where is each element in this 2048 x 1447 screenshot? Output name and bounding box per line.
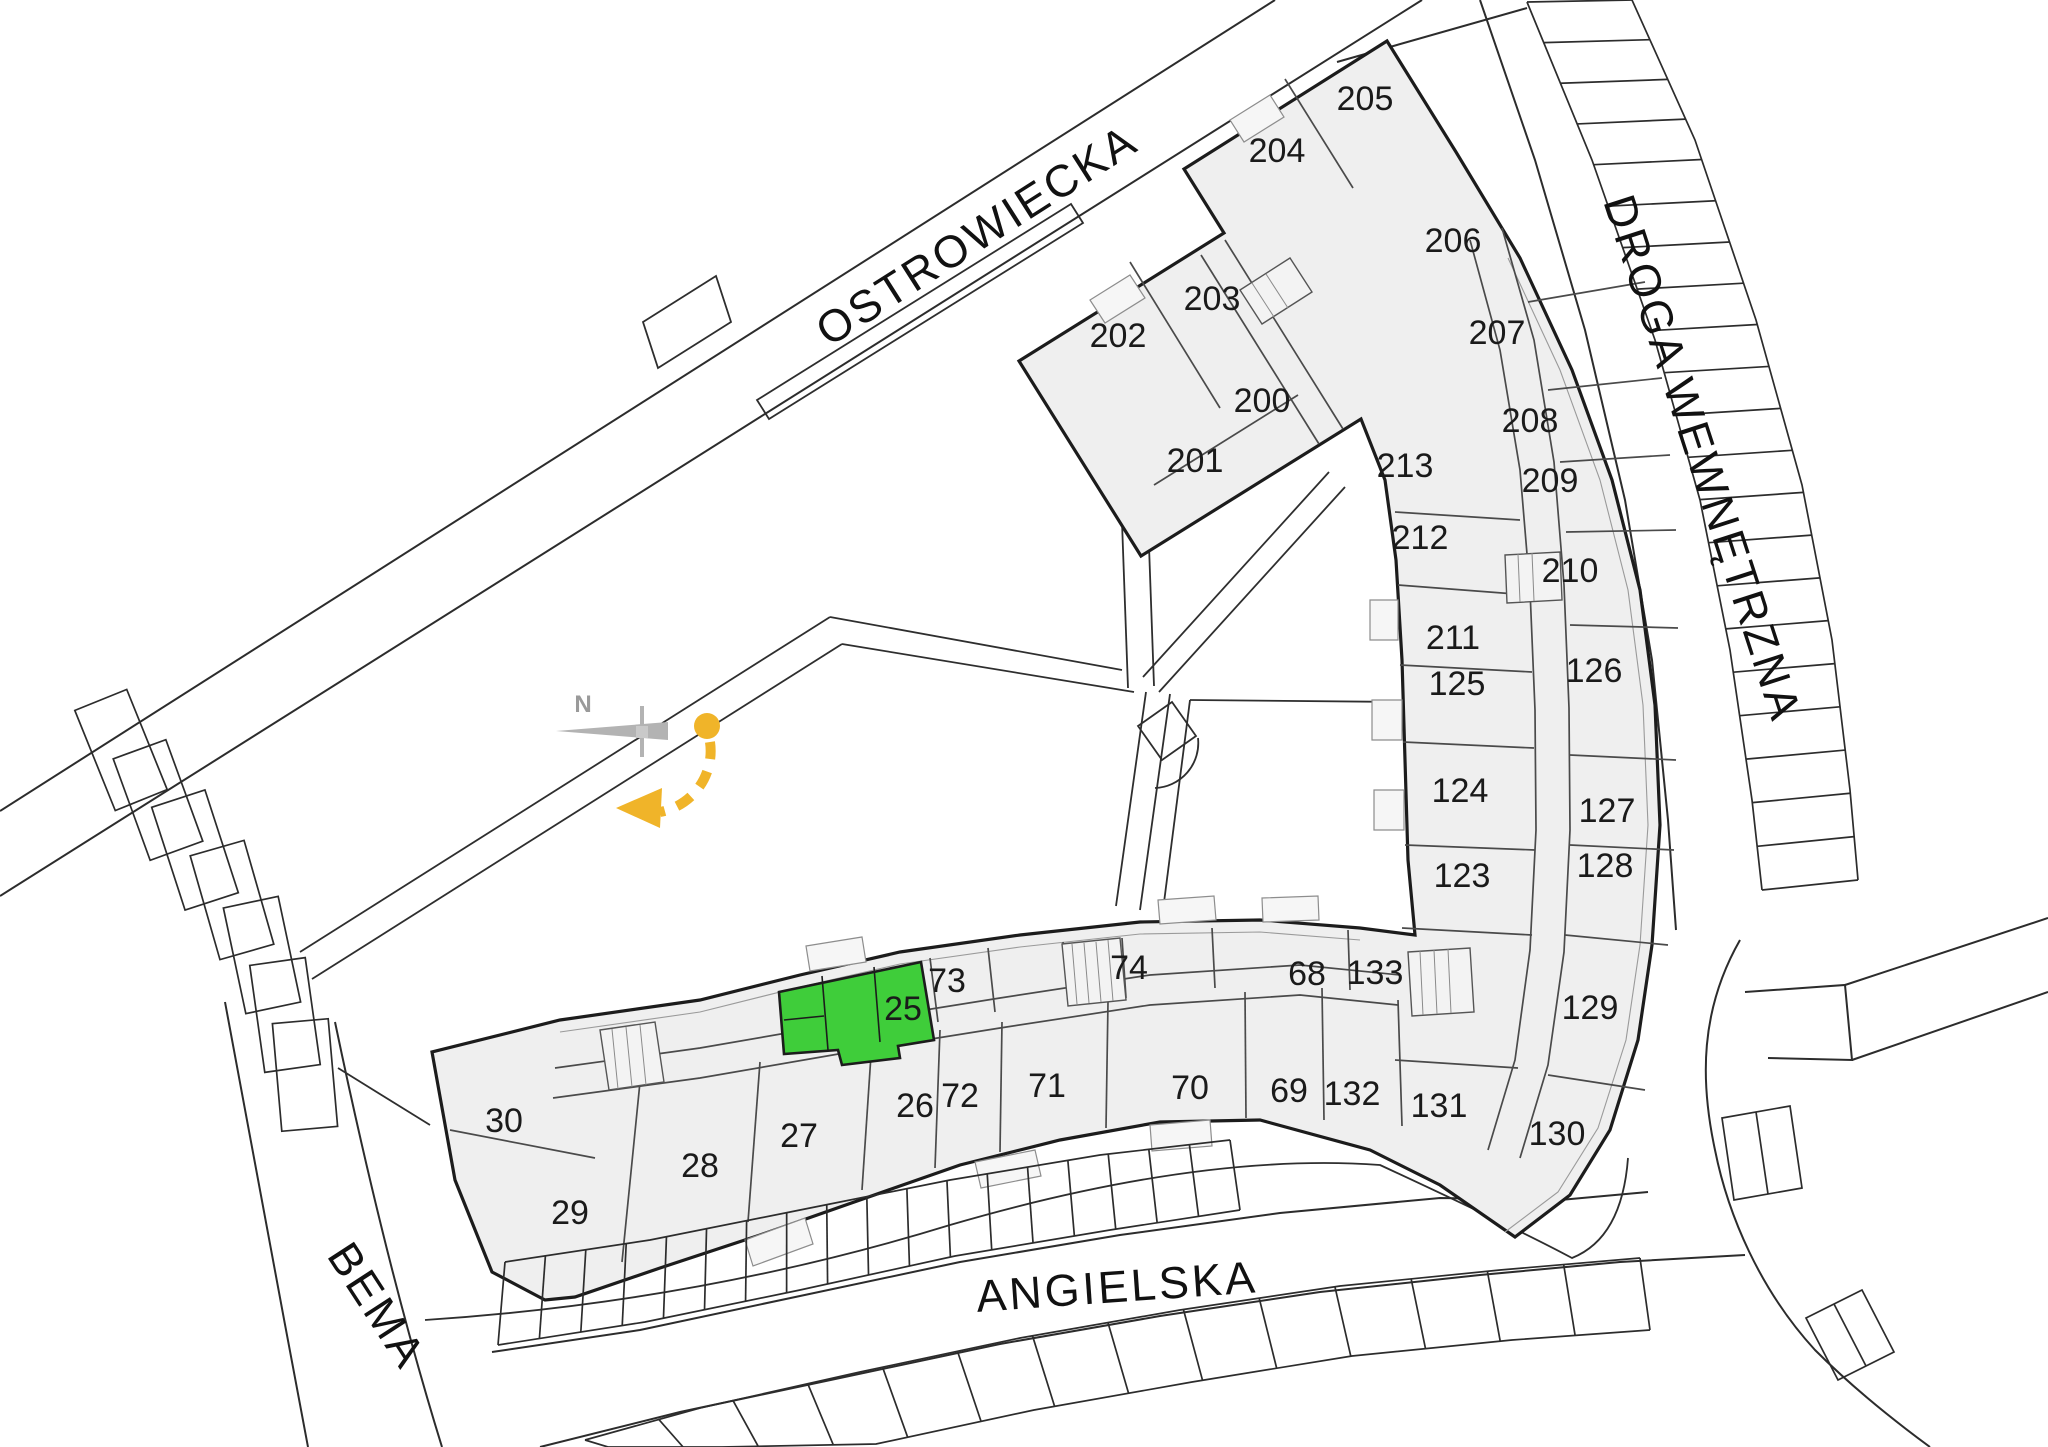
lawn-edge-1 bbox=[300, 617, 830, 952]
unit-label-203[interactable]: 203 bbox=[1184, 280, 1241, 318]
parking-stall bbox=[250, 958, 320, 1073]
courtyard-edge bbox=[1190, 700, 1403, 702]
parking-divider bbox=[1564, 1265, 1575, 1336]
parking-row-edge bbox=[608, 1330, 1650, 1447]
parking-divider bbox=[1834, 1304, 1866, 1366]
unit-label-130[interactable]: 130 bbox=[1529, 1115, 1586, 1153]
unit-label-208[interactable]: 208 bbox=[1502, 402, 1559, 440]
parking-stall bbox=[272, 1019, 337, 1131]
parking-divider bbox=[957, 1351, 981, 1421]
compass-north-label: N bbox=[574, 691, 591, 718]
parking-divider bbox=[1746, 750, 1845, 759]
parking-divider bbox=[1544, 40, 1650, 43]
unit-label-73[interactable]: 73 bbox=[928, 962, 966, 1000]
unit-label-207[interactable]: 207 bbox=[1469, 314, 1526, 352]
unit-label-68[interactable]: 68 bbox=[1288, 955, 1326, 993]
parking-divider bbox=[1149, 1149, 1157, 1222]
site-plan-page: N OSTROWIECKADROGA WEWNĘTRZNABEMAANGIELS… bbox=[0, 0, 2048, 1447]
parking-divider bbox=[746, 1221, 747, 1302]
parking-divider bbox=[1411, 1279, 1425, 1349]
unit-label-126[interactable]: 126 bbox=[1566, 652, 1623, 690]
bema-right-edge bbox=[335, 1022, 442, 1447]
walkway bbox=[830, 617, 1122, 670]
unit-label-30[interactable]: 30 bbox=[485, 1102, 523, 1140]
compass-arc bbox=[660, 742, 711, 812]
parking-divider bbox=[1756, 1112, 1768, 1194]
street-label-bema: BEMA bbox=[318, 1233, 437, 1378]
unit-label-205[interactable]: 205 bbox=[1337, 80, 1394, 118]
street-label-angielska: ANGIELSKA bbox=[974, 1251, 1259, 1322]
parking-stall bbox=[113, 740, 203, 861]
parking-divider bbox=[1757, 837, 1854, 847]
parking-divider bbox=[947, 1181, 950, 1257]
unit-label-71[interactable]: 71 bbox=[1028, 1067, 1066, 1105]
parking-divider bbox=[1594, 160, 1702, 165]
parking-divider bbox=[1527, 0, 1632, 2]
parking-divider bbox=[867, 1197, 869, 1275]
parking-divider bbox=[827, 1205, 828, 1284]
unit-label-133[interactable]: 133 bbox=[1347, 954, 1404, 992]
parking-divider bbox=[1752, 793, 1850, 802]
unit-label-204[interactable]: 204 bbox=[1249, 132, 1306, 170]
unit-label-201[interactable]: 201 bbox=[1167, 442, 1224, 480]
unit-label-200[interactable]: 200 bbox=[1234, 382, 1291, 420]
parking-divider bbox=[733, 1401, 758, 1447]
unit-label-202[interactable]: 202 bbox=[1090, 317, 1147, 355]
parking-divider bbox=[1108, 1323, 1129, 1394]
droga-junction bbox=[1706, 940, 1930, 1447]
parking-divider bbox=[585, 1440, 608, 1447]
compass-needle bbox=[556, 722, 668, 740]
compass-arrow bbox=[616, 788, 662, 828]
unit-label-131[interactable]: 131 bbox=[1411, 1087, 1468, 1125]
unit-label-209[interactable]: 209 bbox=[1522, 462, 1579, 500]
parking-divider bbox=[1335, 1287, 1351, 1356]
parking-divider bbox=[1577, 119, 1685, 124]
parking-divider bbox=[659, 1419, 683, 1447]
unit-label-128[interactable]: 128 bbox=[1577, 847, 1634, 885]
walkway bbox=[842, 644, 1134, 692]
unit-label-28[interactable]: 28 bbox=[681, 1147, 719, 1185]
side-road-edge bbox=[1845, 918, 2048, 985]
parking-divider bbox=[1560, 79, 1667, 83]
unit-label-211[interactable]: 211 bbox=[1426, 619, 1480, 657]
unit-label-29[interactable]: 29 bbox=[551, 1194, 589, 1232]
parking-divider bbox=[1068, 1160, 1075, 1236]
compass-dot bbox=[694, 713, 720, 739]
unit-label-210[interactable]: 210 bbox=[1542, 552, 1599, 590]
unit-label-132[interactable]: 132 bbox=[1324, 1075, 1381, 1113]
compass-hub bbox=[636, 726, 648, 738]
site-plan: N OSTROWIECKADROGA WEWNĘTRZNABEMAANGIELS… bbox=[0, 0, 2048, 1447]
parking-divider bbox=[808, 1384, 834, 1445]
parking-divider bbox=[1189, 1145, 1198, 1217]
parking-divider bbox=[1033, 1336, 1055, 1407]
droga-entry-stub bbox=[1745, 985, 1852, 1060]
parking-divider bbox=[1259, 1298, 1276, 1368]
unit-label-69[interactable]: 69 bbox=[1270, 1072, 1308, 1110]
unit-label-124[interactable]: 124 bbox=[1432, 772, 1489, 810]
unit-label-212[interactable]: 212 bbox=[1392, 519, 1449, 557]
unit-label-129[interactable]: 129 bbox=[1562, 989, 1619, 1027]
unit-label-26[interactable]: 26 bbox=[896, 1087, 934, 1125]
compass: N bbox=[556, 691, 720, 828]
parking-divider bbox=[1762, 880, 1858, 890]
parking-divider bbox=[1230, 1140, 1240, 1210]
unit-label-125[interactable]: 125 bbox=[1429, 665, 1486, 703]
unit-label-70[interactable]: 70 bbox=[1171, 1069, 1209, 1107]
parking-divider bbox=[1183, 1309, 1202, 1380]
parking-divider bbox=[907, 1189, 910, 1266]
parking-divider bbox=[1108, 1154, 1116, 1229]
courtyard-edge bbox=[1162, 700, 1190, 918]
parking-stall bbox=[75, 689, 167, 810]
parking-divider bbox=[1640, 1258, 1650, 1330]
unit-label-72[interactable]: 72 bbox=[941, 1077, 979, 1115]
unit-label-127[interactable]: 127 bbox=[1579, 792, 1636, 830]
unit-label-25-selected[interactable]: 25 bbox=[884, 990, 922, 1028]
unit-label-213[interactable]: 213 bbox=[1377, 447, 1434, 485]
unit-label-74[interactable]: 74 bbox=[1110, 949, 1148, 987]
courtyard-arc bbox=[1155, 738, 1198, 788]
unit-label-206[interactable]: 206 bbox=[1425, 222, 1482, 260]
unit-label-123[interactable]: 123 bbox=[1434, 857, 1491, 895]
unit-label-27[interactable]: 27 bbox=[780, 1117, 818, 1155]
side-road-edge bbox=[1852, 992, 2048, 1060]
walkway bbox=[1122, 522, 1128, 688]
parking-divider bbox=[1487, 1271, 1500, 1341]
buildings bbox=[432, 41, 1678, 1300]
parking-stall bbox=[152, 790, 239, 910]
parking-divider bbox=[883, 1367, 908, 1437]
walkway bbox=[1140, 694, 1170, 910]
